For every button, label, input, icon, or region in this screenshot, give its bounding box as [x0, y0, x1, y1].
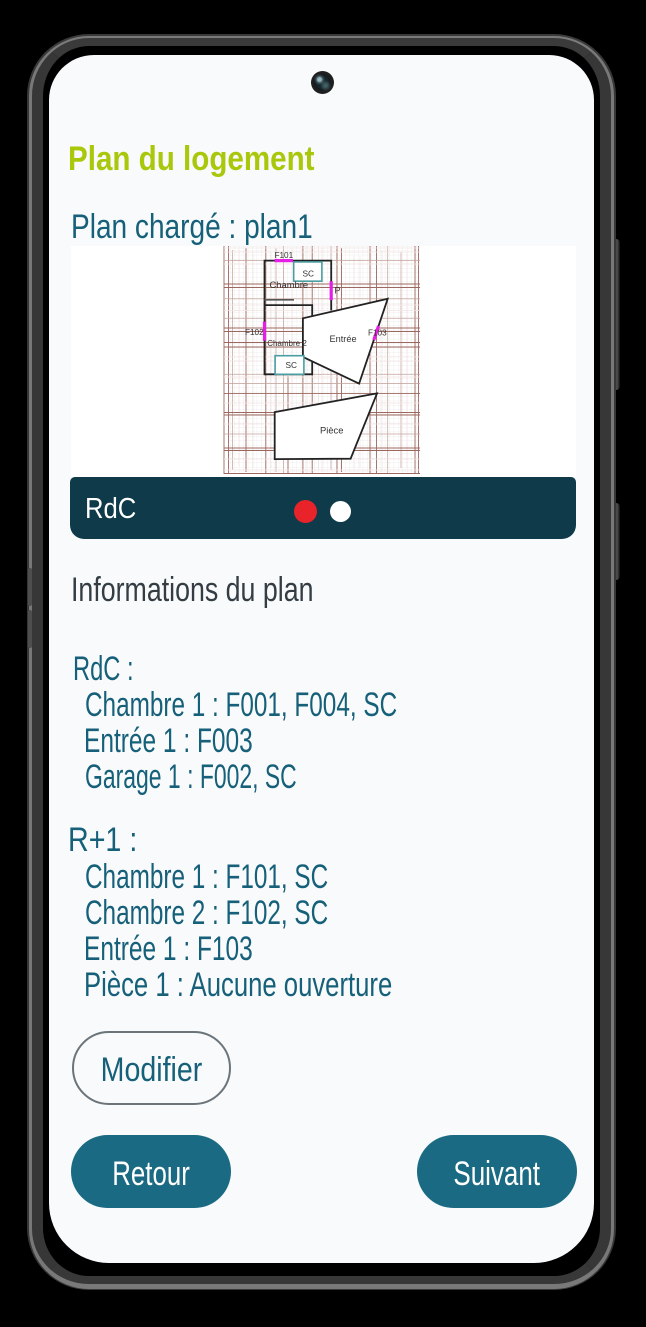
- svg-text:Chambre 2: Chambre 2: [267, 339, 307, 348]
- svg-text:F103: F103: [368, 329, 387, 338]
- svg-text:P: P: [335, 286, 341, 296]
- svg-text:Chambre: Chambre: [270, 279, 309, 290]
- svg-text:F101: F101: [275, 251, 294, 260]
- svg-text:SC: SC: [286, 360, 298, 370]
- svg-text:Entrée: Entrée: [330, 334, 357, 344]
- svg-text:SC: SC: [303, 269, 315, 279]
- svg-text:Pièce: Pièce: [320, 425, 343, 436]
- svg-text:F102: F102: [245, 328, 264, 337]
